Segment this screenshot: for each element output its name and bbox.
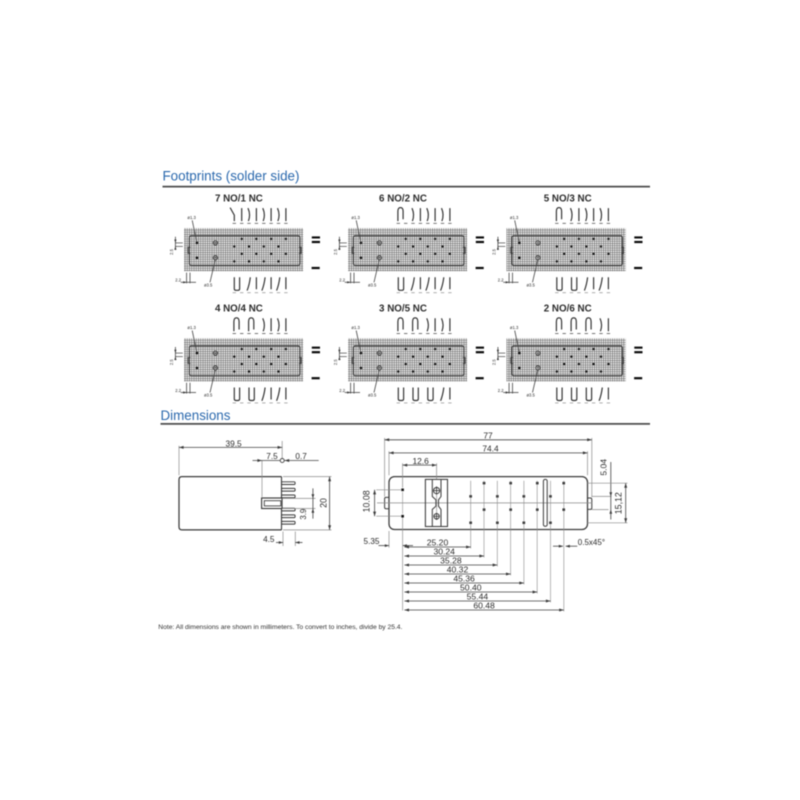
svg-text:0.5x45°: 0.5x45° [578, 538, 605, 547]
svg-text:10.08: 10.08 [361, 490, 371, 512]
svg-text:2.5: 2.5 [492, 359, 497, 365]
svg-text:0.7: 0.7 [295, 452, 307, 461]
svg-text:ø1.3: ø1.3 [351, 215, 360, 220]
svg-text:5.04: 5.04 [598, 459, 608, 476]
svg-text:ø3.5: ø3.5 [368, 393, 377, 398]
svg-text:2.2: 2.2 [498, 388, 504, 393]
svg-text:2.5: 2.5 [169, 359, 174, 365]
svg-text:20: 20 [318, 498, 328, 508]
svg-text:2 NO/6 NC: 2 NO/6 NC [544, 303, 592, 314]
svg-text:ø3.5: ø3.5 [204, 282, 213, 287]
svg-text:2.5: 2.5 [169, 248, 174, 254]
svg-text:ø1.3: ø1.3 [187, 215, 196, 220]
svg-text:Note: All dimensions are shown: Note: All dimensions are shown in millim… [158, 624, 402, 631]
svg-text:ø1.3: ø1.3 [510, 215, 519, 220]
svg-text:5.35: 5.35 [364, 537, 380, 546]
svg-text:ø3.5: ø3.5 [204, 393, 213, 398]
svg-text:15,12: 15,12 [613, 492, 623, 514]
svg-text:2.2: 2.2 [175, 278, 181, 283]
svg-text:6 NO/2 NC: 6 NO/2 NC [379, 194, 427, 205]
svg-text:2.5: 2.5 [333, 359, 338, 365]
svg-text:Dimensions: Dimensions [161, 408, 231, 423]
svg-text:60.48: 60.48 [473, 600, 495, 610]
svg-text:2.2: 2.2 [498, 278, 504, 283]
svg-text:2.2: 2.2 [339, 388, 345, 393]
svg-text:3.9: 3.9 [299, 509, 308, 520]
svg-text:ø1.3: ø1.3 [510, 325, 519, 330]
svg-text:ø1.3: ø1.3 [351, 325, 360, 330]
svg-text:ø3.5: ø3.5 [368, 282, 377, 287]
svg-text:7 NO/1 NC: 7 NO/1 NC [215, 194, 263, 205]
svg-text:2.5: 2.5 [492, 248, 497, 254]
svg-text:77: 77 [483, 430, 493, 440]
svg-text:4 NO/4 NC: 4 NO/4 NC [215, 303, 263, 314]
svg-text:2.2: 2.2 [339, 278, 345, 283]
svg-text:ø3.5: ø3.5 [527, 282, 536, 287]
svg-text:ø1.3: ø1.3 [187, 325, 196, 330]
svg-text:4.5: 4.5 [263, 535, 275, 544]
svg-text:3 NO/5 NC: 3 NO/5 NC [379, 303, 427, 314]
svg-text:2.5: 2.5 [333, 248, 338, 254]
svg-text:39.5: 39.5 [226, 438, 243, 448]
svg-text:7.5: 7.5 [266, 452, 278, 461]
svg-text:12.6: 12.6 [412, 456, 429, 466]
svg-text:5 NO/3 NC: 5 NO/3 NC [544, 194, 592, 205]
svg-text:ø3.5: ø3.5 [527, 393, 536, 398]
svg-text:Footprints (solder side): Footprints (solder side) [163, 169, 300, 184]
svg-text:2.2: 2.2 [175, 388, 181, 393]
svg-text:74.4: 74.4 [482, 443, 499, 453]
